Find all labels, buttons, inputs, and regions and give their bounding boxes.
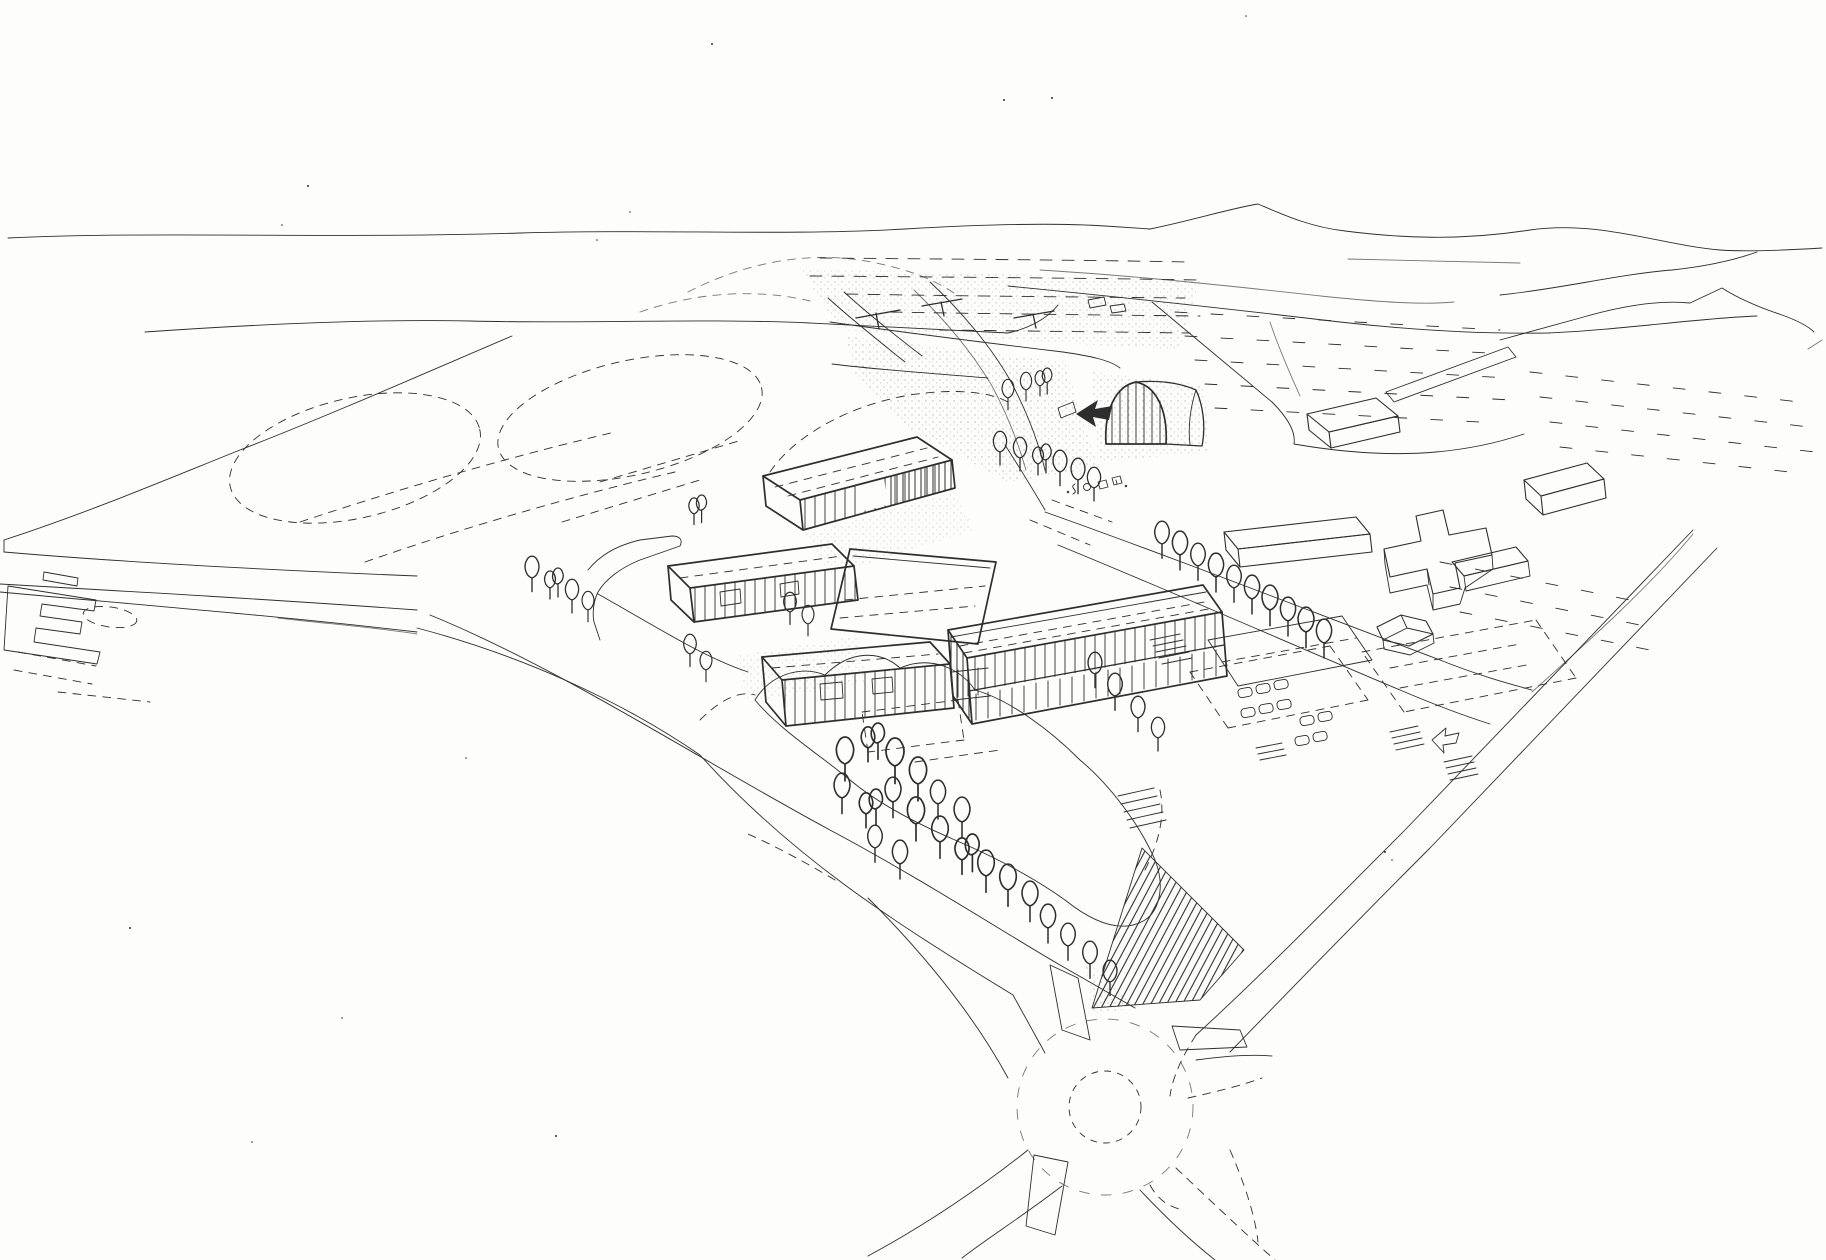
paper-background [0, 0, 1826, 1260]
sketch-page [0, 0, 1826, 1260]
masterplan-sketch [0, 0, 1826, 1260]
